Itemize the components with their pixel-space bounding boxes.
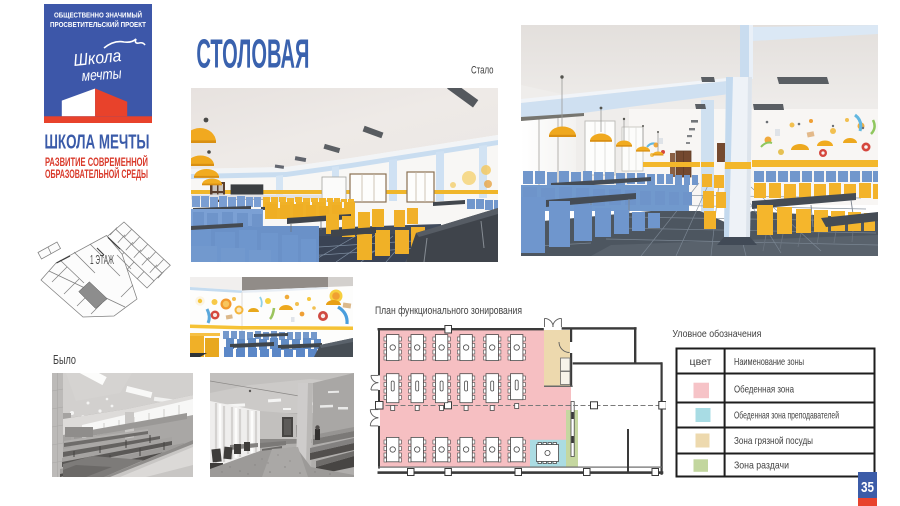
svg-text:ОБЩЕСТВЕННО ЗНАЧИМЫЙ: ОБЩЕСТВЕННО ЗНАЧИМЫЙ xyxy=(54,11,142,20)
svg-text:РАЗВИТИЕ СОВРЕМЕННОЙ: РАЗВИТИЕ СОВРЕМЕННОЙ xyxy=(45,156,148,169)
svg-text:СТОЛОВАЯ: СТОЛОВАЯ xyxy=(196,31,309,75)
svg-text:Обеденная зона преподавателей: Обеденная зона преподавателей xyxy=(734,410,839,422)
svg-text:ШКОЛА МЕЧТЫ: ШКОЛА МЕЧТЫ xyxy=(45,131,150,153)
svg-text:Стало: Стало xyxy=(471,64,494,76)
svg-text:Наименование зоны: Наименование зоны xyxy=(734,357,804,368)
svg-text:цвет: цвет xyxy=(690,357,712,368)
svg-text:мечты: мечты xyxy=(81,65,122,85)
svg-text:ПРОСВЕТИТЕЛЬСКИЙ ПРОЕКТ: ПРОСВЕТИТЕЛЬСКИЙ ПРОЕКТ xyxy=(50,20,147,29)
svg-text:35: 35 xyxy=(861,479,874,496)
svg-text:Зона раздачи: Зона раздачи xyxy=(734,461,789,472)
svg-text:Зона грязной посуды: Зона грязной посуды xyxy=(734,436,813,447)
svg-text:ОБРАЗОВАТЕЛЬНОЙ СРЕДЫ: ОБРАЗОВАТЕЛЬНОЙ СРЕДЫ xyxy=(45,168,148,181)
svg-text:Обеденная зона: Обеденная зона xyxy=(734,384,794,396)
svg-text:Было: Было xyxy=(53,353,76,367)
svg-text:Уловное обозначения: Уловное обозначения xyxy=(672,328,761,340)
svg-text:1 ЭТАЖ: 1 ЭТАЖ xyxy=(90,252,114,267)
